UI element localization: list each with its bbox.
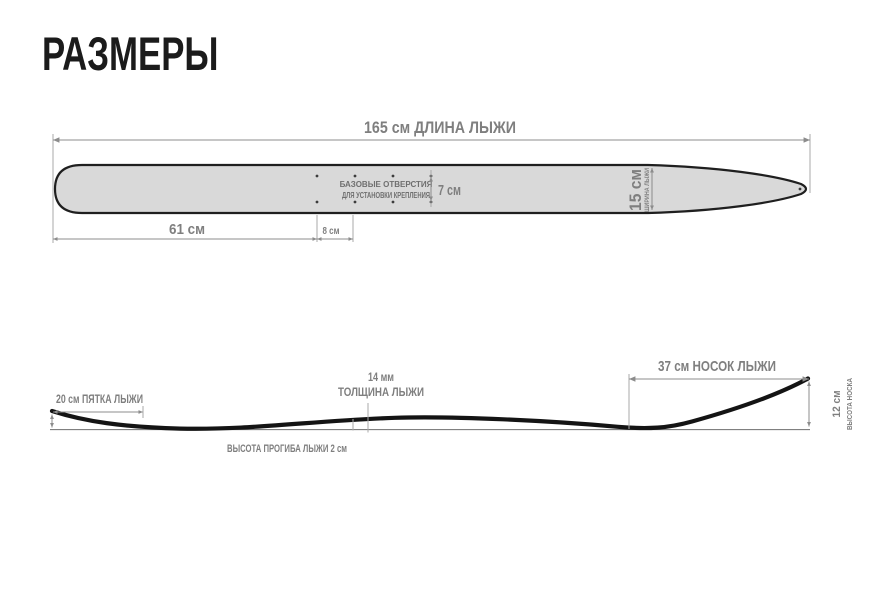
page-root: { "title": "РАЗМЕРЫ", "top_view": { "len… xyxy=(0,0,875,601)
holes-note-line1: БАЗОВЫЕ ОТВЕРСТИЯ xyxy=(340,180,433,189)
camber-height-label: ВЫСОТА ПРОГИБА ЛЫЖИ 2 см xyxy=(227,443,347,455)
thickness-value-label: 14 мм xyxy=(368,370,394,384)
ski-side-profile xyxy=(52,379,808,429)
nose-height-caption-label: ВЫСОТА НОСКА xyxy=(847,378,854,430)
top-view-figure: 165 см ДЛИНА ЛЫЖИ БАЗОВЫЕ ОТВЕРСТИЯ ДЛЯ … xyxy=(53,118,810,243)
mount-hole xyxy=(316,201,319,204)
tail-to-holes-dimension-label: 61 см xyxy=(169,221,205,238)
mount-hole xyxy=(392,201,395,204)
nose-dimension-label: 37 см НОСОК ЛЫЖИ xyxy=(658,358,776,375)
mount-hole xyxy=(354,201,357,204)
side-view-figure: 20 см ПЯТКА ЛЫЖИ 14 мм ТОЛЩИНА ЛЫЖИ ВЫСО… xyxy=(50,358,854,455)
width-dimension-label: 15 см xyxy=(626,169,645,211)
hole-spacing-dimension-label: 8 см xyxy=(323,225,340,237)
holes-note-line2: ДЛЯ УСТАНОВКИ КРЕПЛЕНИЯ xyxy=(342,191,430,200)
hole-rows-dimension-label: 7 см xyxy=(438,182,461,199)
heel-dimension-label: 20 см ПЯТКА ЛЫЖИ xyxy=(56,392,143,406)
nose-height-value-label: 12 см xyxy=(831,391,843,418)
mount-hole xyxy=(392,175,395,178)
nose-tip-hole xyxy=(799,188,802,191)
mount-hole xyxy=(354,175,357,178)
mount-hole xyxy=(316,175,319,178)
width-dimension-caption: ШИРИНА ЛЫЖИ xyxy=(644,168,651,212)
length-dimension-label: 165 см ДЛИНА ЛЫЖИ xyxy=(364,118,516,137)
ski-dimensions-diagram: 165 см ДЛИНА ЛЫЖИ БАЗОВЫЕ ОТВЕРСТИЯ ДЛЯ … xyxy=(0,0,875,601)
thickness-caption-label: ТОЛЩИНА ЛЫЖИ xyxy=(338,385,424,399)
